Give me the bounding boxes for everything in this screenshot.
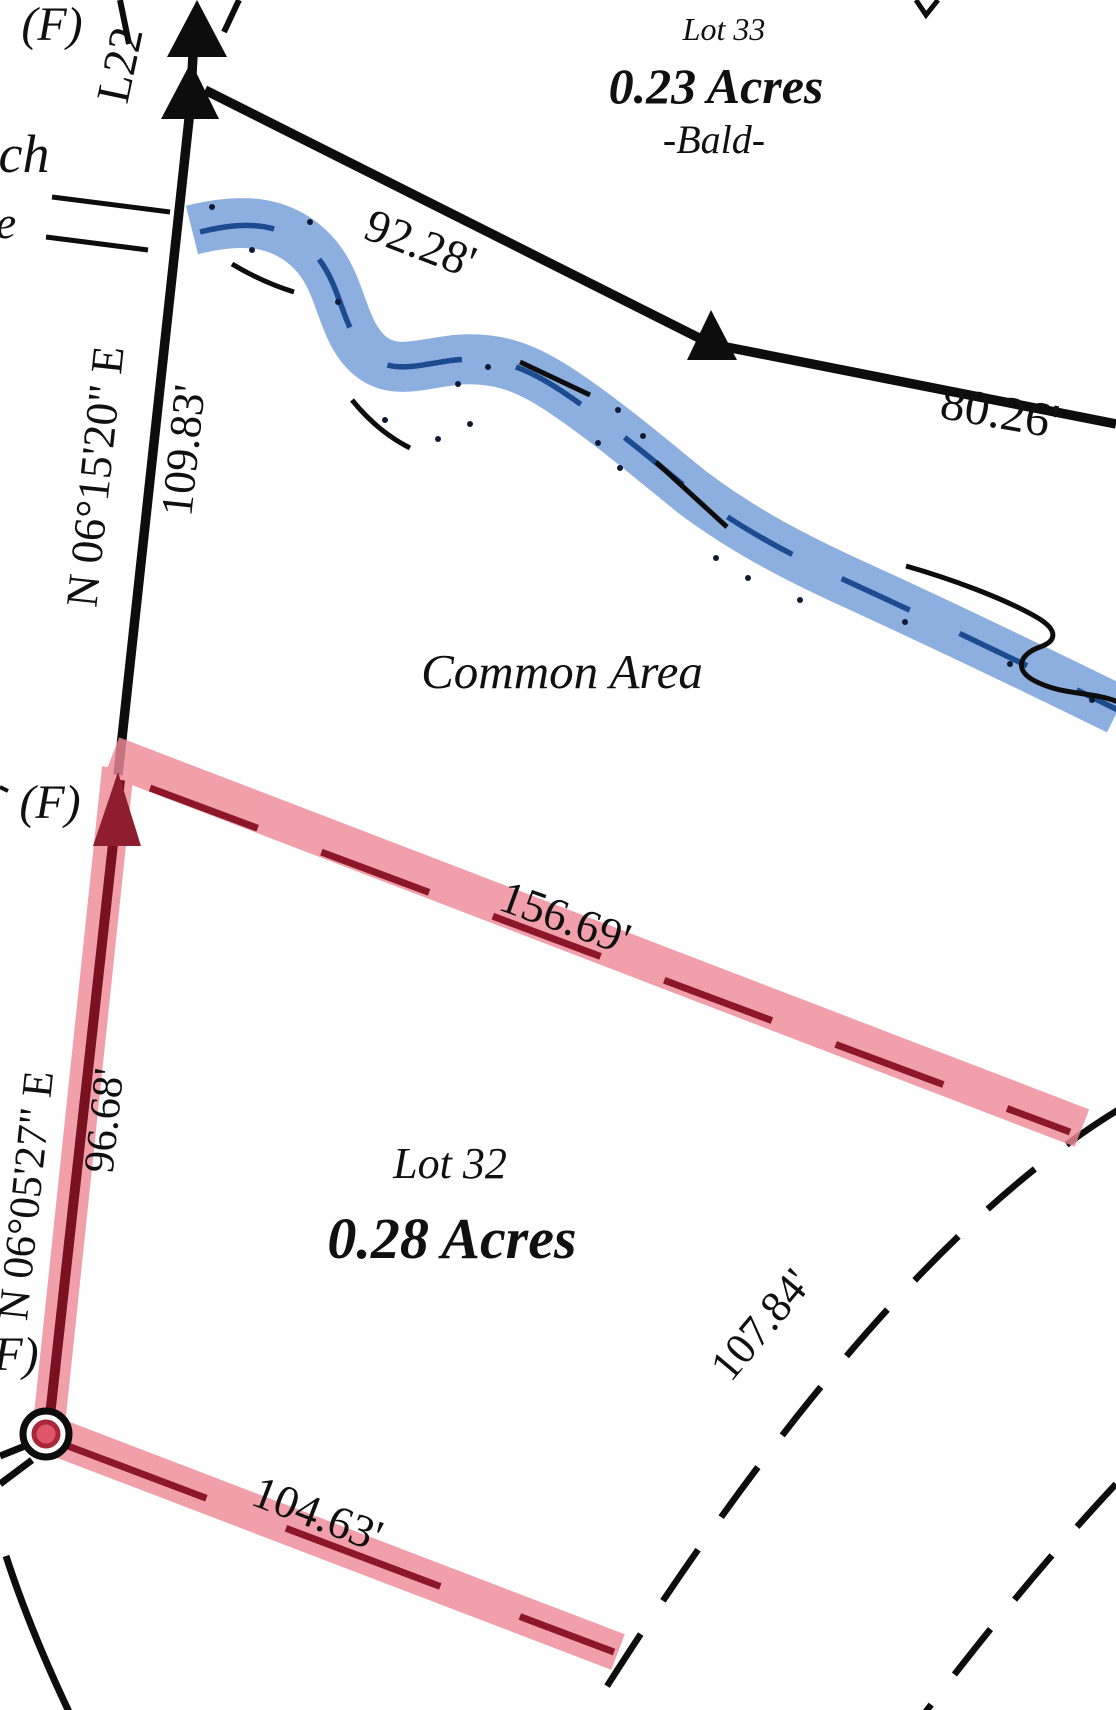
found-marker-top: (F) xyxy=(21,0,82,51)
stream-highlight[interactable] xyxy=(192,223,1116,710)
found-marker-mid: (F) xyxy=(19,776,80,829)
label-leader-line xyxy=(46,237,148,250)
dim-9228: 92.28' xyxy=(358,199,483,288)
boundary-fragment-bottom-left xyxy=(6,1556,70,1710)
plat-map-svg: Lot 33 0.23 Acres -Bald- 92.28' 80.26' N… xyxy=(0,0,1116,1710)
lot32-name: Lot 32 xyxy=(392,1139,507,1188)
line-tick xyxy=(224,0,239,32)
found-marker-bottom: (F) xyxy=(0,1328,39,1381)
dim-9668: 96.68' xyxy=(76,1066,134,1175)
line-label-l22: L22 xyxy=(87,22,154,107)
stream-edge-dash xyxy=(352,400,410,448)
dim-10784: 107.84' xyxy=(701,1260,821,1390)
lot33-area: 0.23 Acres xyxy=(609,58,824,114)
boundary-arrowhead-top xyxy=(167,0,227,57)
arc-10784-dashed xyxy=(602,1110,1116,1694)
lot33-note: -Bald- xyxy=(663,117,765,162)
arc-right-dashed xyxy=(924,1484,1116,1710)
label-leader-line xyxy=(52,197,170,212)
common-area-label: Common Area xyxy=(421,644,703,699)
corner-point-marker[interactable] xyxy=(23,1411,69,1457)
partial-label-e: e xyxy=(0,197,16,248)
corner-line-fragment xyxy=(0,1460,32,1484)
lot32-area: 0.28 Acres xyxy=(327,1206,576,1271)
stream-edge-dash xyxy=(232,264,294,292)
lot33-name: Lot 33 xyxy=(682,11,766,47)
corner-tick xyxy=(916,0,938,15)
plat-map-canvas: Lot 33 0.23 Acres -Bald- 92.28' 80.26' N… xyxy=(0,0,1116,1710)
bearing-0615: N 06°15'20" E xyxy=(57,344,134,610)
edge-tick xyxy=(0,787,8,791)
partial-label-ch: ch xyxy=(0,124,49,184)
dim-8026: 80.26' xyxy=(936,374,1063,449)
